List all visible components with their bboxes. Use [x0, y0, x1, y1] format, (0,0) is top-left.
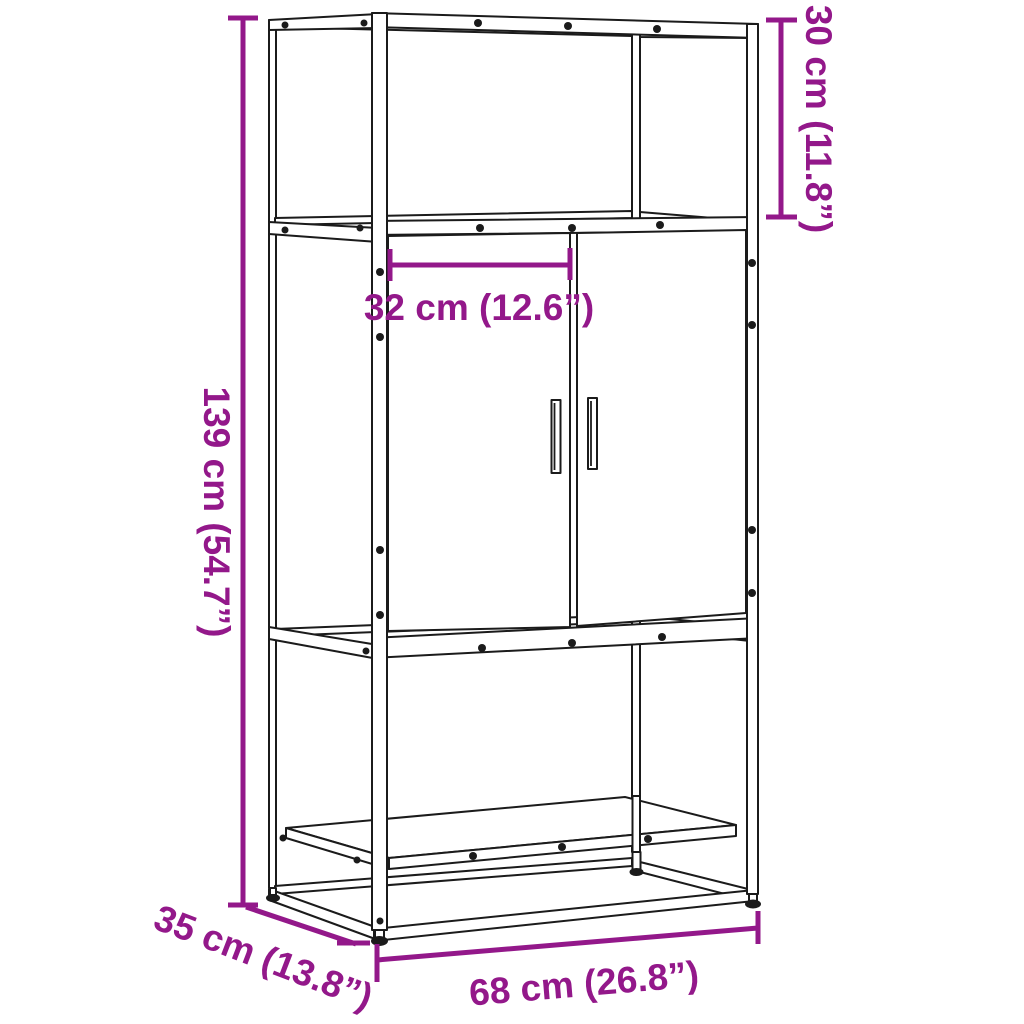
back-right-foot-stem	[633, 852, 641, 870]
door-width-label: 32 cm (12.6”)	[364, 287, 594, 328]
diagram-stage: 139 cm (54.7”) 30 cm (11.8”) 32 cm (12.6…	[0, 0, 1024, 1024]
top-compartment-height-label: 30 cm (11.8”)	[798, 5, 839, 233]
front-right-foot	[745, 900, 761, 909]
cabinet-dimension-diagram: 139 cm (54.7”) 30 cm (11.8”) 32 cm (12.6…	[0, 0, 1024, 1024]
door-handle-right	[588, 398, 597, 469]
front-left-post	[372, 13, 387, 930]
back-right-leg-lower	[633, 796, 641, 854]
overall-height-label: 139 cm (54.7”)	[196, 387, 237, 638]
door-right	[577, 230, 746, 626]
overall-width-label: 68 cm (26.8”)	[467, 953, 700, 1013]
dimension-overall-height: 139 cm (54.7”)	[196, 18, 258, 905]
back-left-foot-stem	[270, 888, 276, 895]
front-right-post	[747, 24, 758, 894]
door-handle-left	[552, 400, 561, 473]
back-right-foot	[630, 868, 644, 876]
back-left-post	[269, 20, 276, 888]
cabinet-drawing	[266, 13, 761, 946]
lower-shelf	[286, 796, 736, 869]
back-left-foot	[266, 894, 280, 902]
dimension-top-compartment-height: 30 cm (11.8”)	[766, 5, 839, 233]
